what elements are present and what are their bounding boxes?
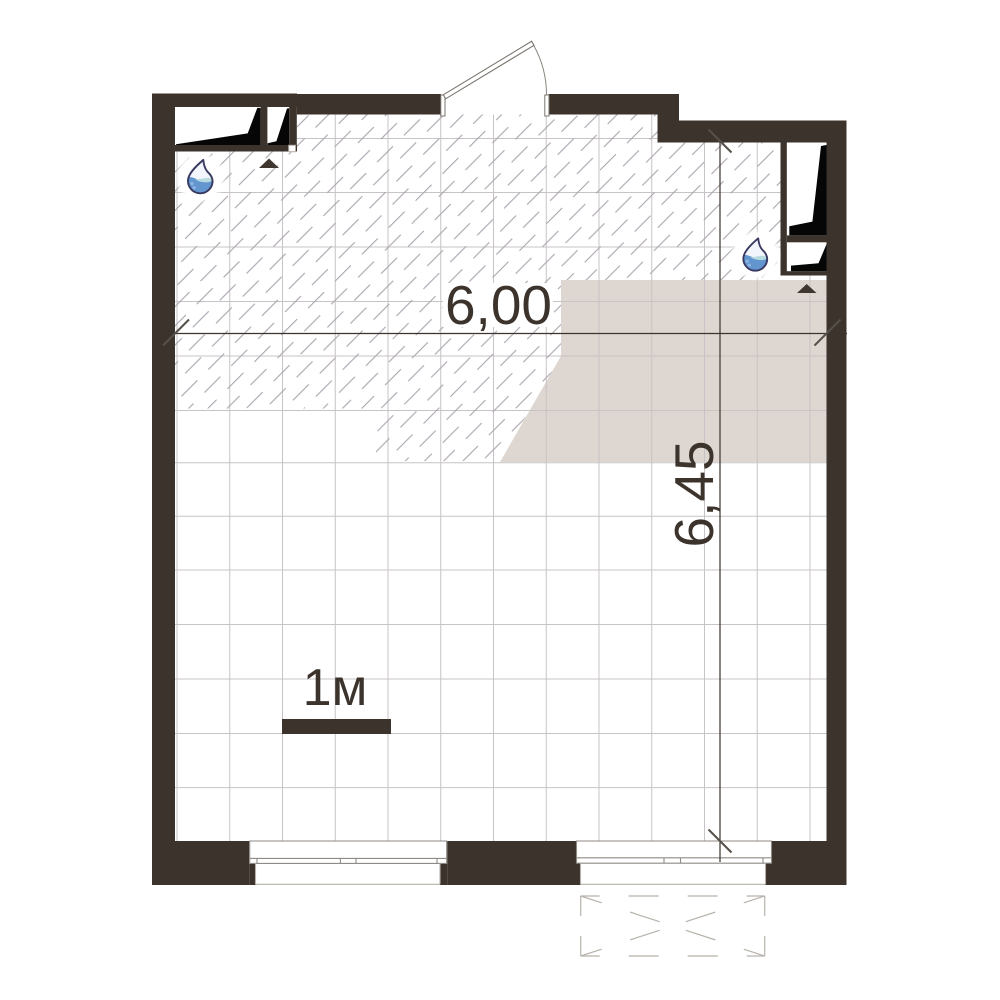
svg-text:6,00: 6,00 bbox=[445, 274, 552, 336]
svg-text:6,45: 6,45 bbox=[663, 440, 725, 547]
svg-text:1м: 1м bbox=[303, 659, 368, 717]
